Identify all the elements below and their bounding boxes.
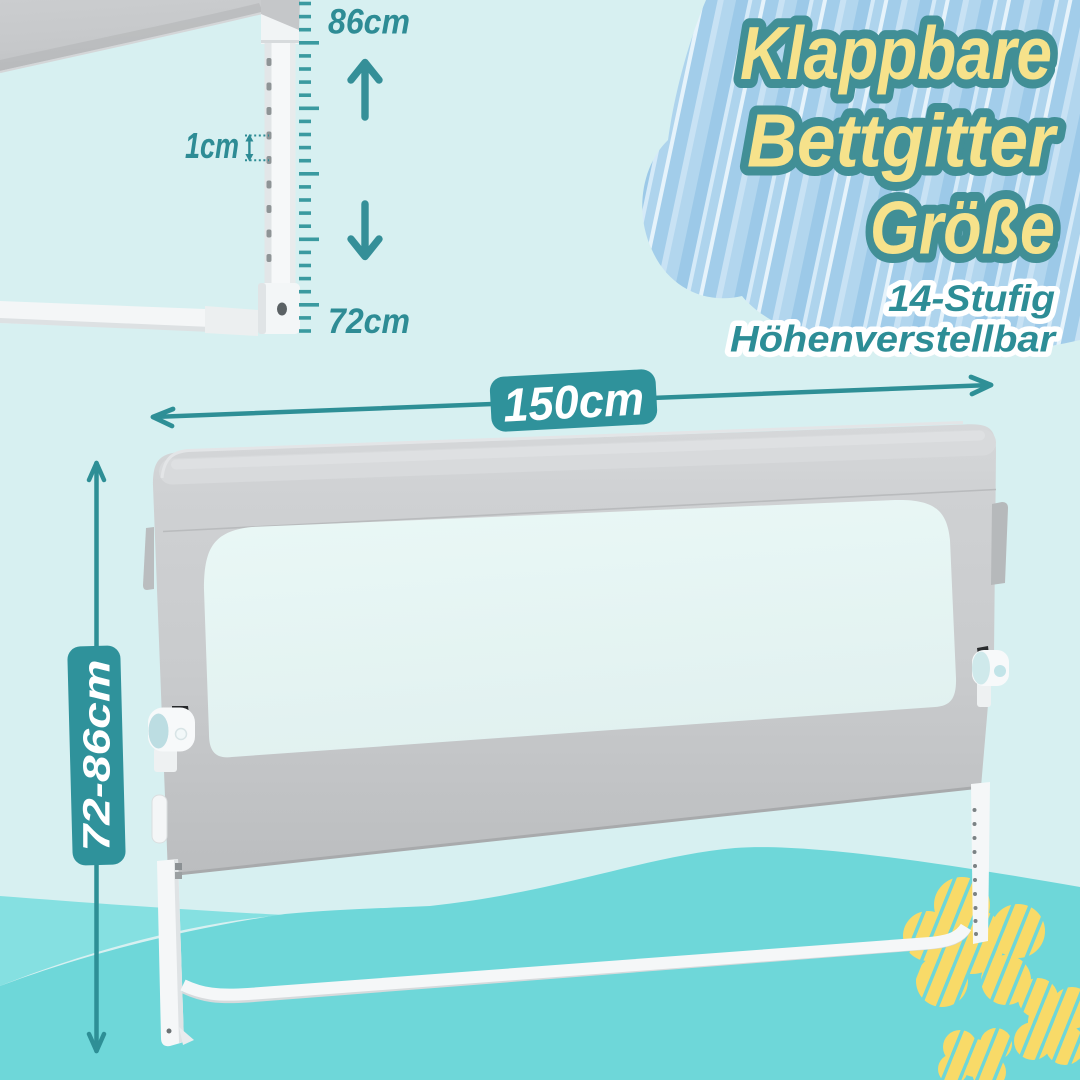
svg-text:Klappbare: Klappbare xyxy=(740,11,1052,95)
svg-text:72-86cm: 72-86cm xyxy=(77,660,119,852)
svg-text:14-Stufig: 14-Stufig xyxy=(888,278,1055,319)
svg-text:150cm: 150cm xyxy=(502,371,646,431)
svg-text:Höhenverstellbar: Höhenverstellbar xyxy=(730,319,1058,360)
svg-text:Größe: Größe xyxy=(870,186,1055,270)
svg-text:Bettgitter: Bettgitter xyxy=(747,99,1059,183)
svg-text:1cm: 1cm xyxy=(185,125,239,166)
svg-text:86cm: 86cm xyxy=(328,3,410,42)
svg-text:72cm: 72cm xyxy=(328,302,410,341)
